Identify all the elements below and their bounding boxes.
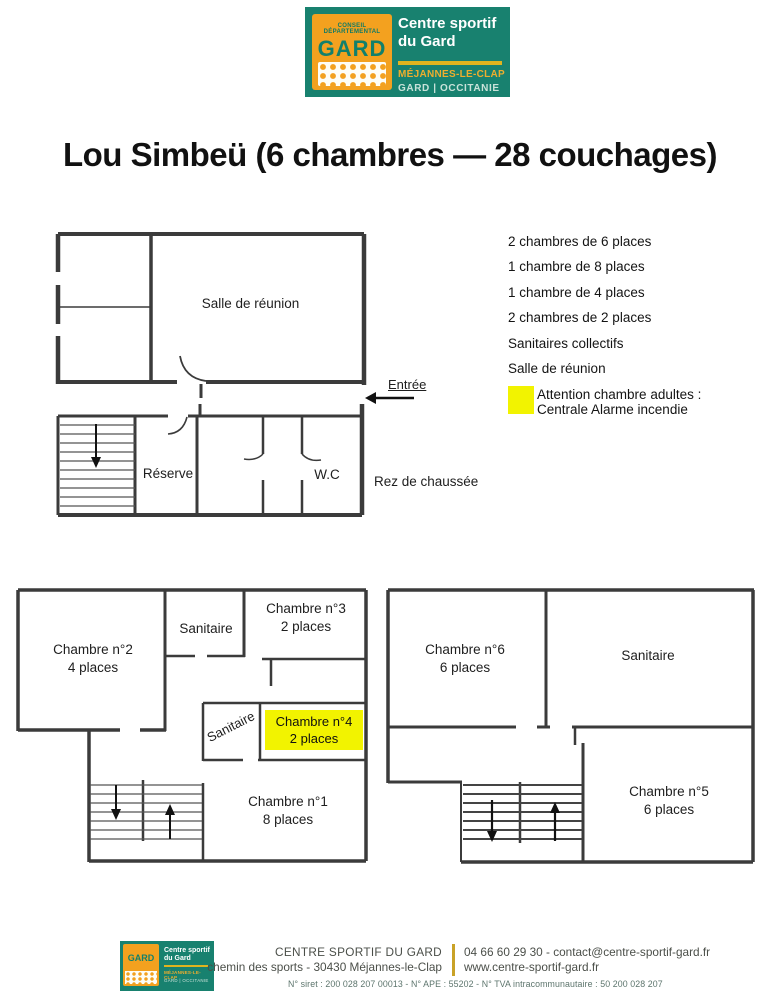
room6-capacity: 6 places: [403, 659, 527, 677]
gard-logo-text: GARD: [312, 36, 392, 62]
meeting-room-label: Salle de réunion: [168, 295, 333, 313]
room3-name: Chambre n°3: [250, 600, 362, 618]
room1-name: Chambre n°1: [227, 793, 349, 811]
summary-item: Salle de réunion: [508, 356, 651, 381]
org-name-line2: du Gard: [398, 34, 456, 49]
yellow-legend-swatch: [508, 386, 534, 414]
banner-region: GARD | OCCITANIE: [398, 83, 500, 94]
entrance-arrow: [365, 392, 414, 404]
header-brand-banner: CONSEIL DÉPARTEMENTAL GARD Centre sporti…: [305, 7, 510, 97]
room5-name: Chambre n°5: [606, 783, 732, 801]
footer-legal-ids: N° siret : 200 028 207 00013 - N° APE : …: [288, 979, 663, 989]
room4-highlighted-label: Chambre n°4 2 places: [265, 710, 363, 750]
room1-capacity: 8 places: [227, 811, 349, 829]
footer-org-name: CENTRE SPORTIF DU GARD: [232, 945, 442, 959]
room4-name: Chambre n°4: [265, 713, 363, 730]
room5-capacity: 6 places: [606, 801, 732, 819]
aqueduct-icon: [318, 62, 386, 86]
door-arc: [244, 454, 263, 459]
page-title: Lou Simbeü (6 chambres — 28 couchages): [0, 136, 780, 174]
scanned-document-page: CONSEIL DÉPARTEMENTAL GARD Centre sporti…: [0, 0, 780, 1001]
banner-location: MÉJANNES-LE-CLAP: [398, 69, 505, 80]
summary-item: 2 chambres de 2 places: [508, 305, 651, 330]
gard-department-logo: CONSEIL DÉPARTEMENTAL GARD: [312, 14, 392, 90]
conseil-departemental-label: CONSEIL DÉPARTEMENTAL: [312, 23, 392, 35]
footer-phone-email: 04 66 60 29 30 - contact@centre-sportif-…: [464, 945, 710, 959]
room6-label: Chambre n°6 6 places: [403, 641, 527, 677]
summary-item: 1 chambre de 4 places: [508, 280, 651, 305]
room2-capacity: 4 places: [28, 659, 158, 677]
org-name-line1: Centre sportif: [398, 16, 496, 31]
summary-item: 2 chambres de 6 places: [508, 229, 651, 254]
door-arc: [180, 356, 206, 381]
banner-divider-rule: [398, 61, 502, 65]
room2-name: Chambre n°2: [28, 641, 158, 659]
second-floor-plan: [384, 585, 764, 870]
entrance-label: Entrée: [388, 377, 426, 392]
room3-label: Chambre n°3 2 places: [250, 600, 362, 636]
room6-name: Chambre n°6: [403, 641, 527, 659]
ground-floor-stairs: [60, 425, 135, 506]
second-floor-stairs: [463, 785, 582, 839]
sanitaire-right-label: Sanitaire: [600, 647, 696, 665]
wc-room-label: W.C: [305, 466, 349, 484]
room5-label: Chambre n°5 6 places: [606, 783, 732, 819]
capacity-summary-list: 2 chambres de 6 places 1 chambre de 8 pl…: [508, 229, 651, 381]
gard-logo-text-small: GARD: [123, 953, 159, 963]
org-name-line2-small: du Gard: [164, 955, 191, 963]
first-floor-stairs: [90, 785, 202, 839]
summary-item: Sanitaires collectifs: [508, 331, 651, 356]
room1-label: Chambre n°1 8 places: [227, 793, 349, 829]
ground-floor-caption: Rez de chaussée: [374, 473, 478, 491]
footer-address: chemin des sports - 30430 Méjannes-le-Cl…: [195, 960, 442, 974]
room3-capacity: 2 places: [250, 618, 362, 636]
room4-capacity: 2 places: [265, 730, 363, 747]
gard-department-logo-small: GARD: [123, 944, 159, 986]
summary-item: 1 chambre de 8 places: [508, 254, 651, 279]
sanitaire-top-label: Sanitaire: [167, 620, 245, 638]
room2-label: Chambre n°2 4 places: [28, 641, 158, 677]
reserve-room-label: Réserve: [138, 465, 198, 483]
alarm-warning-note: Attention chambre adultes : Centrale Ala…: [537, 387, 701, 417]
alarm-warning-line2: Centrale Alarme incendie: [537, 402, 701, 417]
footer-divider: [452, 944, 455, 976]
door-arc: [302, 454, 321, 460]
footer-website: www.centre-sportif-gard.fr: [464, 960, 599, 974]
org-name-line1-small: Centre sportif: [164, 947, 210, 955]
footer-logo-region: GARD | OCCITANIE: [164, 978, 209, 983]
door-arc: [168, 417, 187, 434]
alarm-warning-line1: Attention chambre adultes :: [537, 387, 701, 402]
aqueduct-icon-small: [125, 971, 157, 984]
